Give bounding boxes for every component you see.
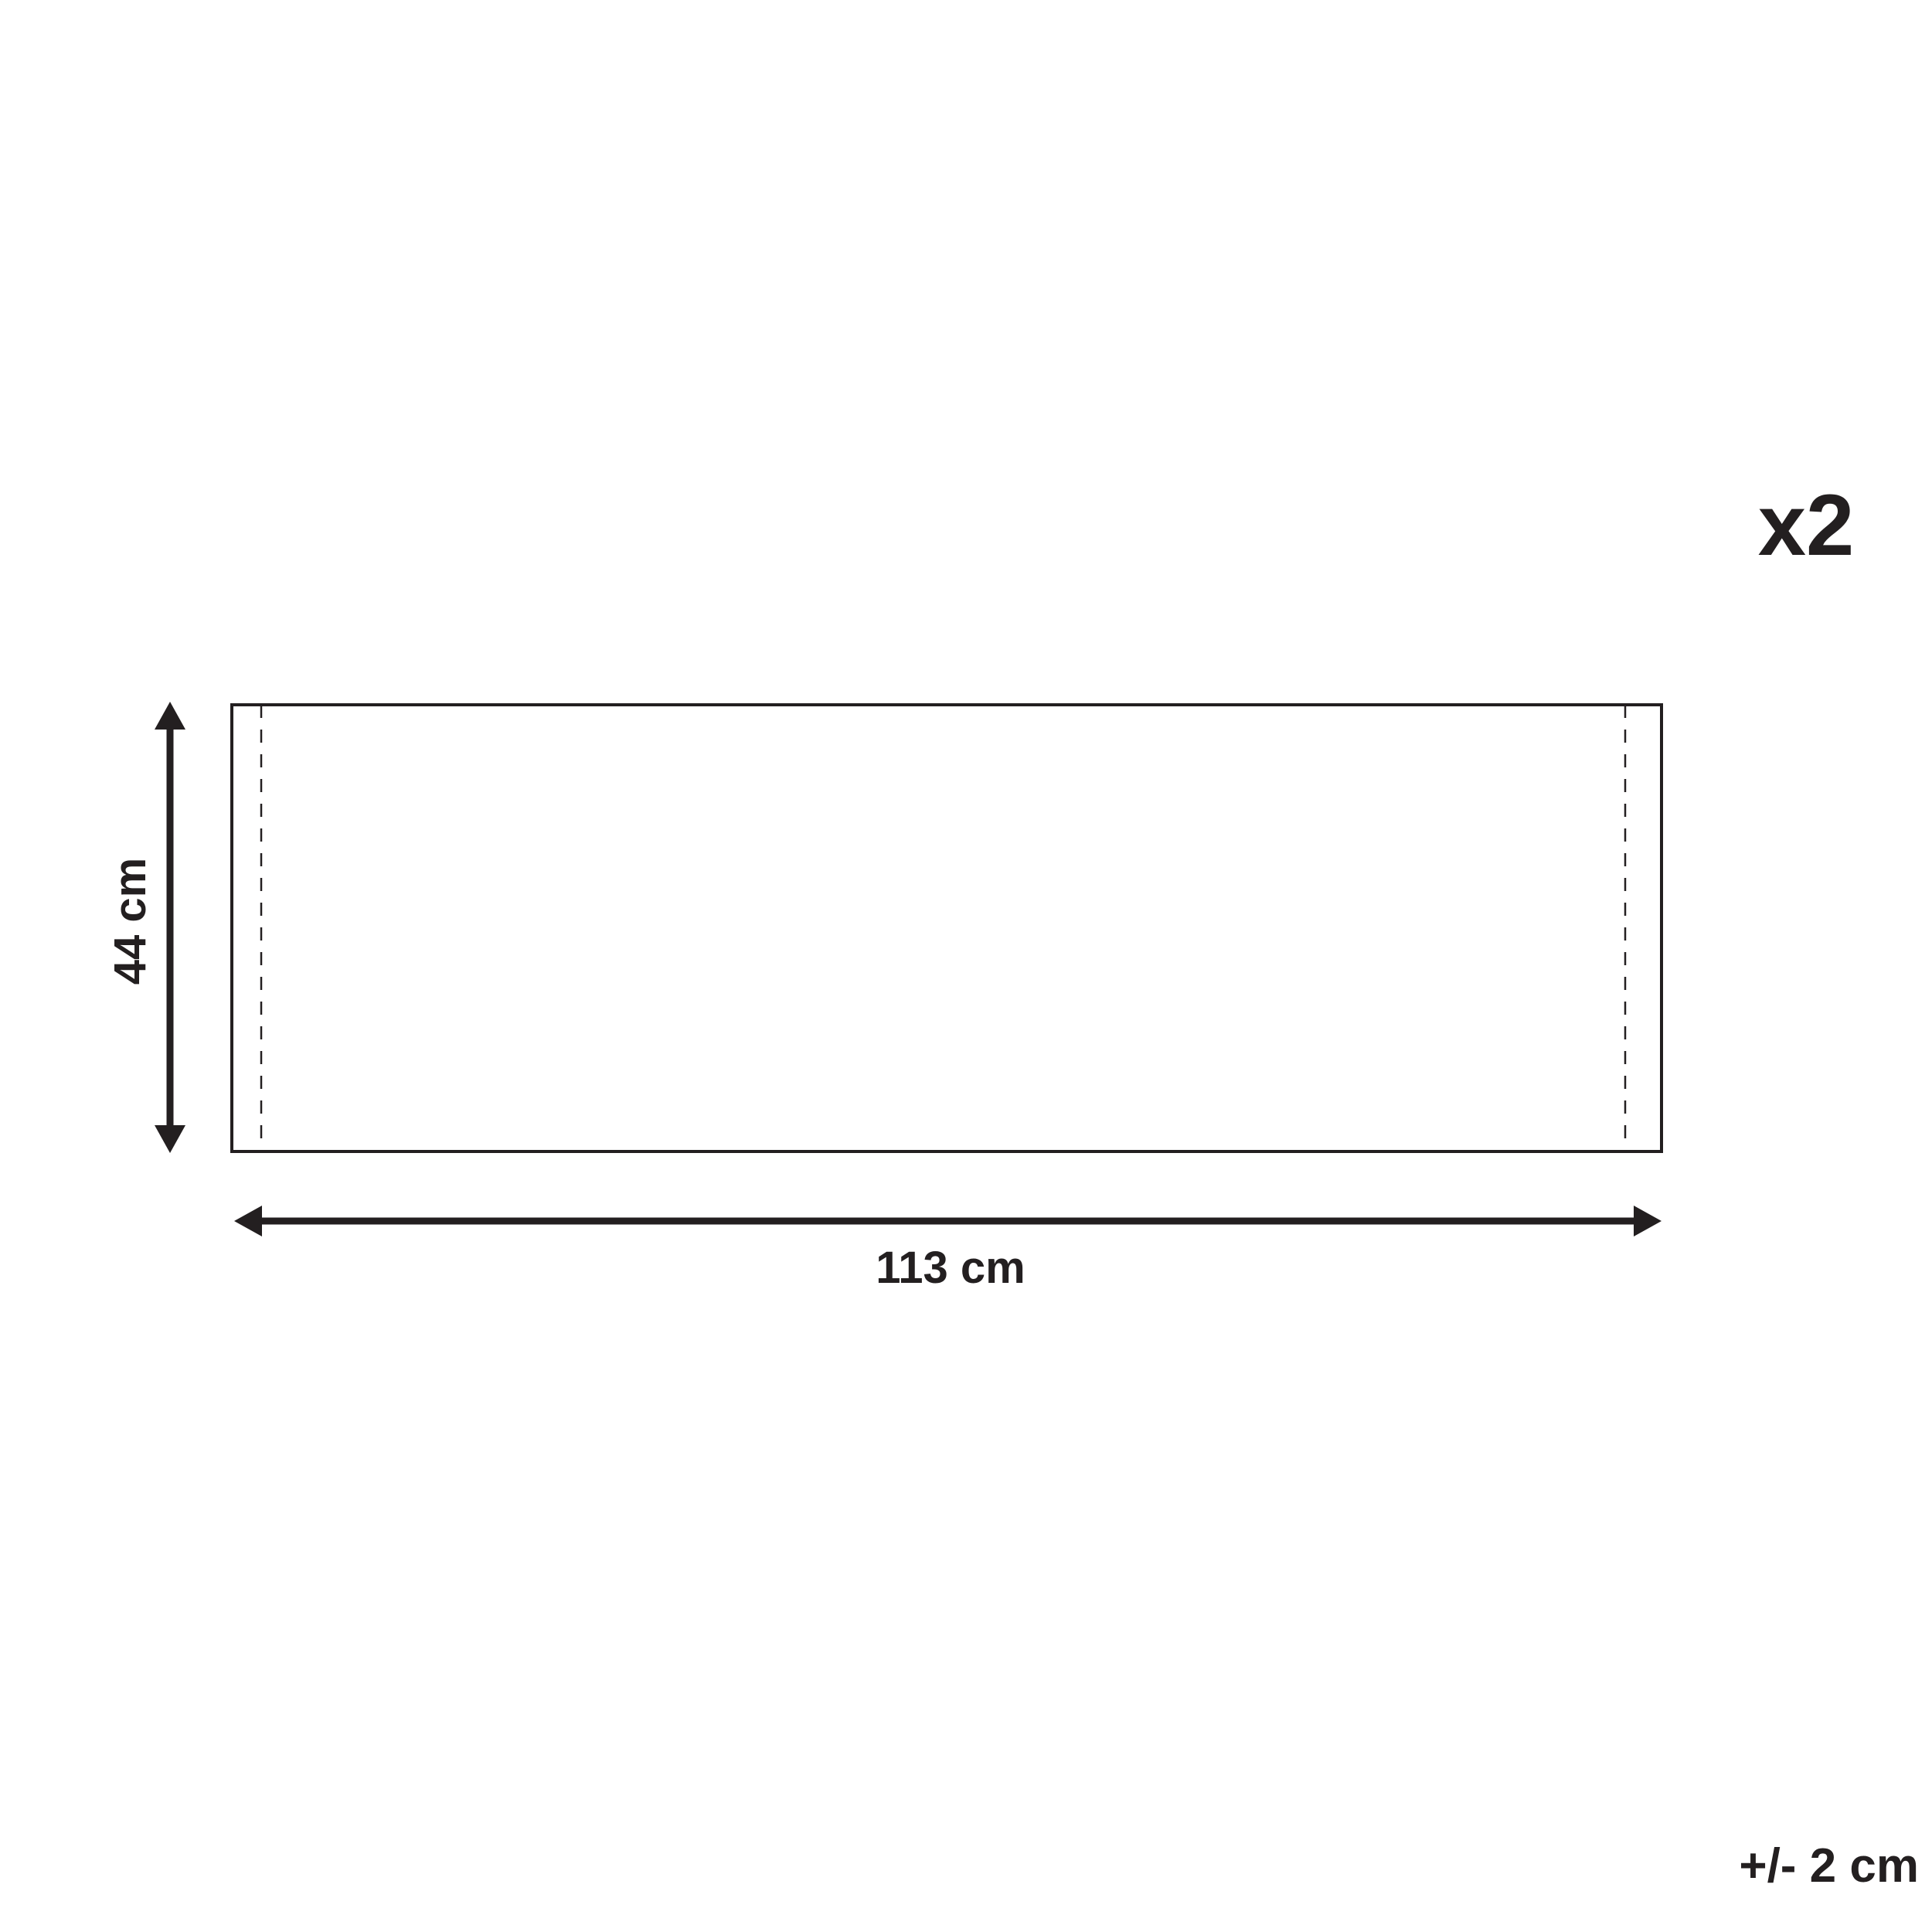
width-label: 113 cm	[876, 1243, 1026, 1293]
height-label: 44 cm	[105, 858, 155, 985]
arrow-right-icon	[1634, 1206, 1662, 1236]
diagram-svg: 44 cm 113 cm x2 +/- 2 cm	[0, 0, 1932, 1932]
arrow-left-icon	[234, 1206, 262, 1236]
quantity-label: x2	[1758, 477, 1855, 573]
product-outline	[232, 705, 1662, 1151]
height-arrow	[155, 702, 185, 1153]
arrow-up-icon	[155, 702, 185, 730]
width-arrow	[234, 1206, 1662, 1236]
dimension-diagram: 44 cm 113 cm x2 +/- 2 cm	[0, 0, 1932, 1932]
tolerance-label: +/- 2 cm	[1739, 1839, 1919, 1893]
arrow-down-icon	[155, 1125, 185, 1153]
